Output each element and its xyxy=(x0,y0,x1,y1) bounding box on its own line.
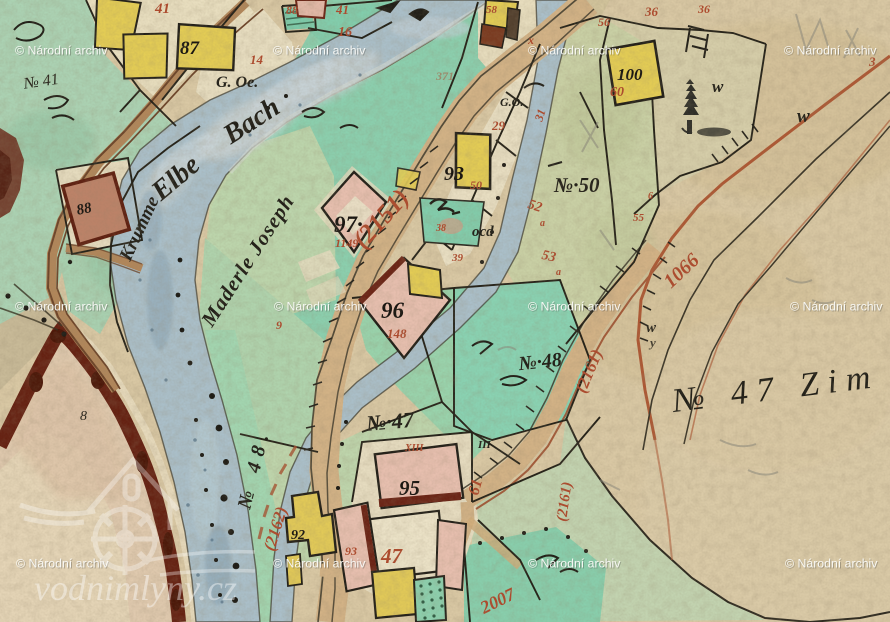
svg-text:© Národní archiv: © Národní archiv xyxy=(790,300,883,314)
svg-text:© Národní archiv: © Národní archiv xyxy=(528,44,621,58)
svg-text:© Národní archiv: © Národní archiv xyxy=(784,44,877,58)
svg-text:© Národní archiv: © Národní archiv xyxy=(528,557,621,571)
svg-text:© Národní archiv: © Národní archiv xyxy=(15,44,108,58)
svg-text:© Národní archiv: © Národní archiv xyxy=(15,300,108,314)
svg-text:vodnimlyny.cz: vodnimlyny.cz xyxy=(34,568,237,608)
svg-text:© Národní archiv: © Národní archiv xyxy=(274,300,367,314)
svg-text:© Národní archiv: © Národní archiv xyxy=(273,44,366,58)
svg-text:© Národní archiv: © Národní archiv xyxy=(785,557,878,571)
svg-text:© Národní archiv: © Národní archiv xyxy=(273,557,366,571)
svg-text:© Národní archiv: © Národní archiv xyxy=(528,300,621,314)
